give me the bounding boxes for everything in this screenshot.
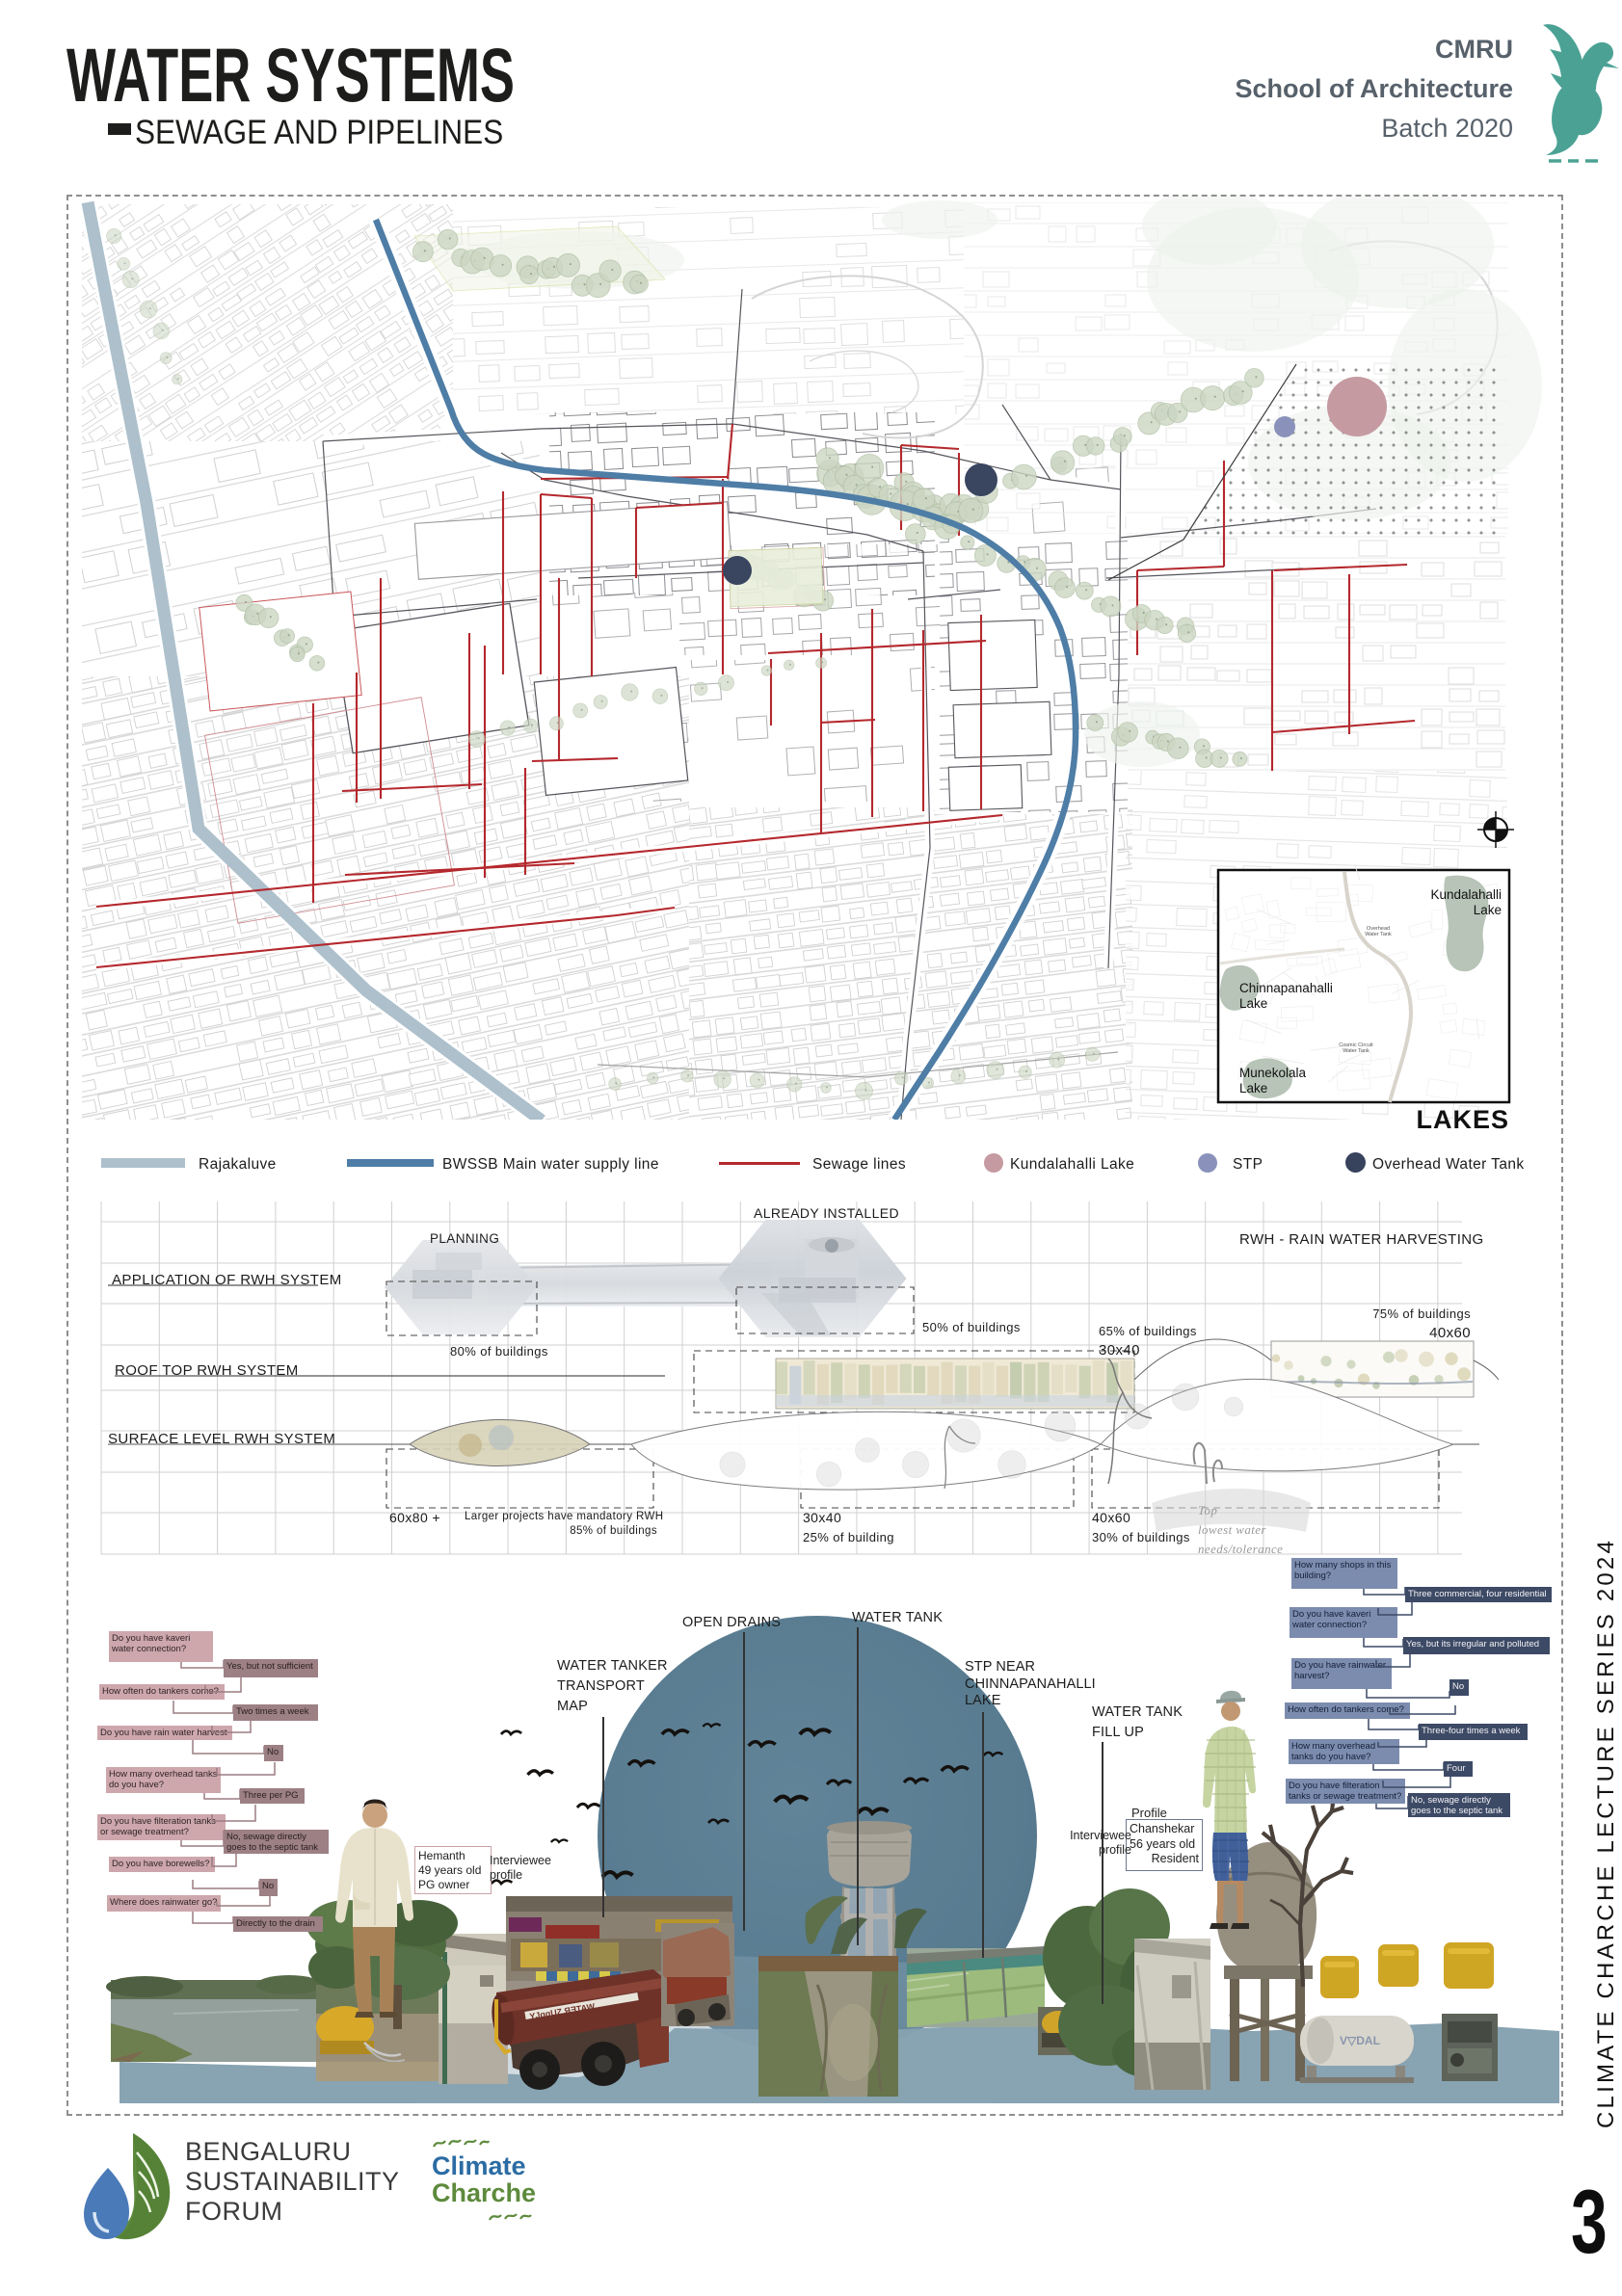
svg-text:V▽DAL: V▽DAL [1340, 2034, 1380, 2047]
